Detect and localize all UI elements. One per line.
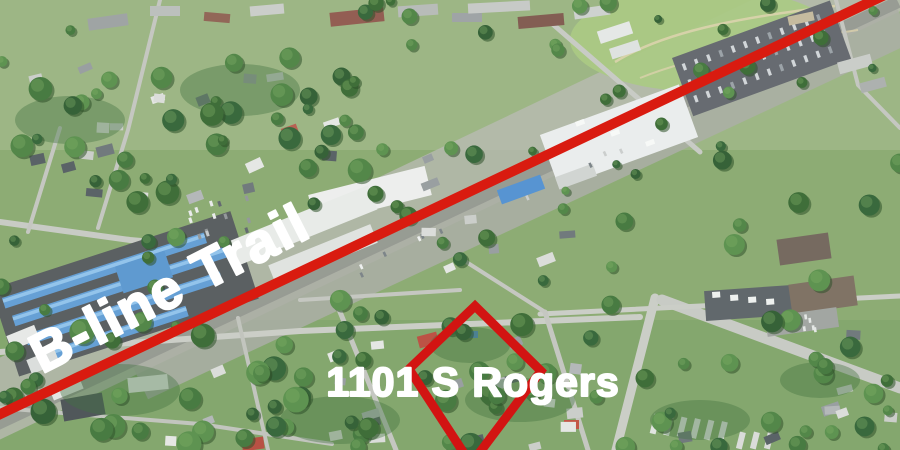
property-label: 1101 S Rogers — [326, 359, 619, 405]
aerial-listing-image: B-line Trail 1101 S Rogers — [0, 0, 900, 450]
aerial-photo: B-line Trail 1101 S Rogers — [0, 0, 900, 450]
